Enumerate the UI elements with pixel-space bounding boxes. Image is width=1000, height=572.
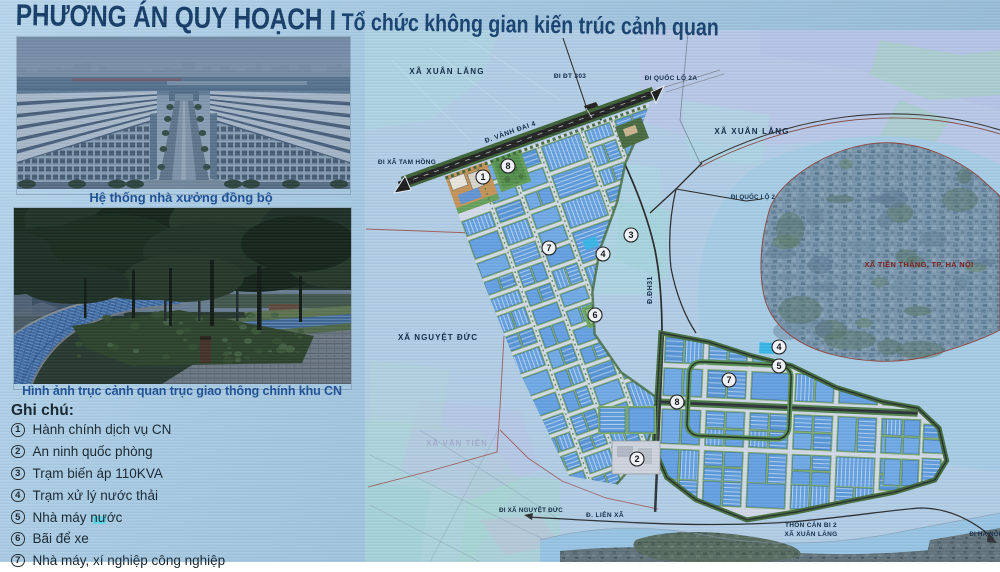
svg-text:8: 8: [674, 397, 679, 407]
svg-text:XÃ TIỀN THẮNG, TP. HÀ NỘI: XÃ TIỀN THẮNG, TP. HÀ NỘI: [864, 259, 973, 269]
svg-text:Đ. LIÊN XÃ: Đ. LIÊN XÃ: [586, 510, 624, 519]
svg-text:5: 5: [776, 361, 781, 371]
svg-text:4: 4: [600, 249, 605, 259]
svg-text:XÃ NGUYỆT ĐỨC: XÃ NGUYỆT ĐỨC: [398, 333, 478, 342]
svg-text:6: 6: [592, 310, 597, 320]
svg-text:1: 1: [480, 172, 485, 182]
svg-text:7: 7: [546, 243, 551, 253]
svg-text:3: 3: [628, 230, 633, 240]
svg-text:Đ.ĐH31: Đ.ĐH31: [647, 276, 654, 304]
svg-text:8: 8: [505, 161, 510, 171]
svg-text:4: 4: [776, 342, 781, 352]
svg-text:ĐI QUỐC LỘ 2: ĐI QUỐC LỘ 2: [731, 193, 776, 201]
svg-text:ĐI XÃ NGUYỆT ĐỨC: ĐI XÃ NGUYỆT ĐỨC: [499, 505, 563, 514]
svg-text:2: 2: [634, 454, 639, 464]
svg-text:ĐI ĐT 303: ĐI ĐT 303: [554, 73, 586, 80]
svg-text:XÃ XUÂN LĂNG: XÃ XUÂN LĂNG: [714, 127, 789, 136]
svg-text:XÃ XUÂN LĂNG: XÃ XUÂN LĂNG: [409, 67, 484, 76]
svg-text:7: 7: [726, 375, 731, 385]
svg-text:XÃ VĂN TIẾN: XÃ VĂN TIẾN: [426, 438, 488, 448]
svg-text:THÔN CẢN BI 2: THÔN CẢN BI 2: [785, 520, 837, 529]
svg-text:XÃ XUÂN LĂNG: XÃ XUÂN LĂNG: [784, 529, 837, 538]
svg-text:ĐI HÀ NỘI: ĐI HÀ NỘI: [969, 530, 1000, 538]
